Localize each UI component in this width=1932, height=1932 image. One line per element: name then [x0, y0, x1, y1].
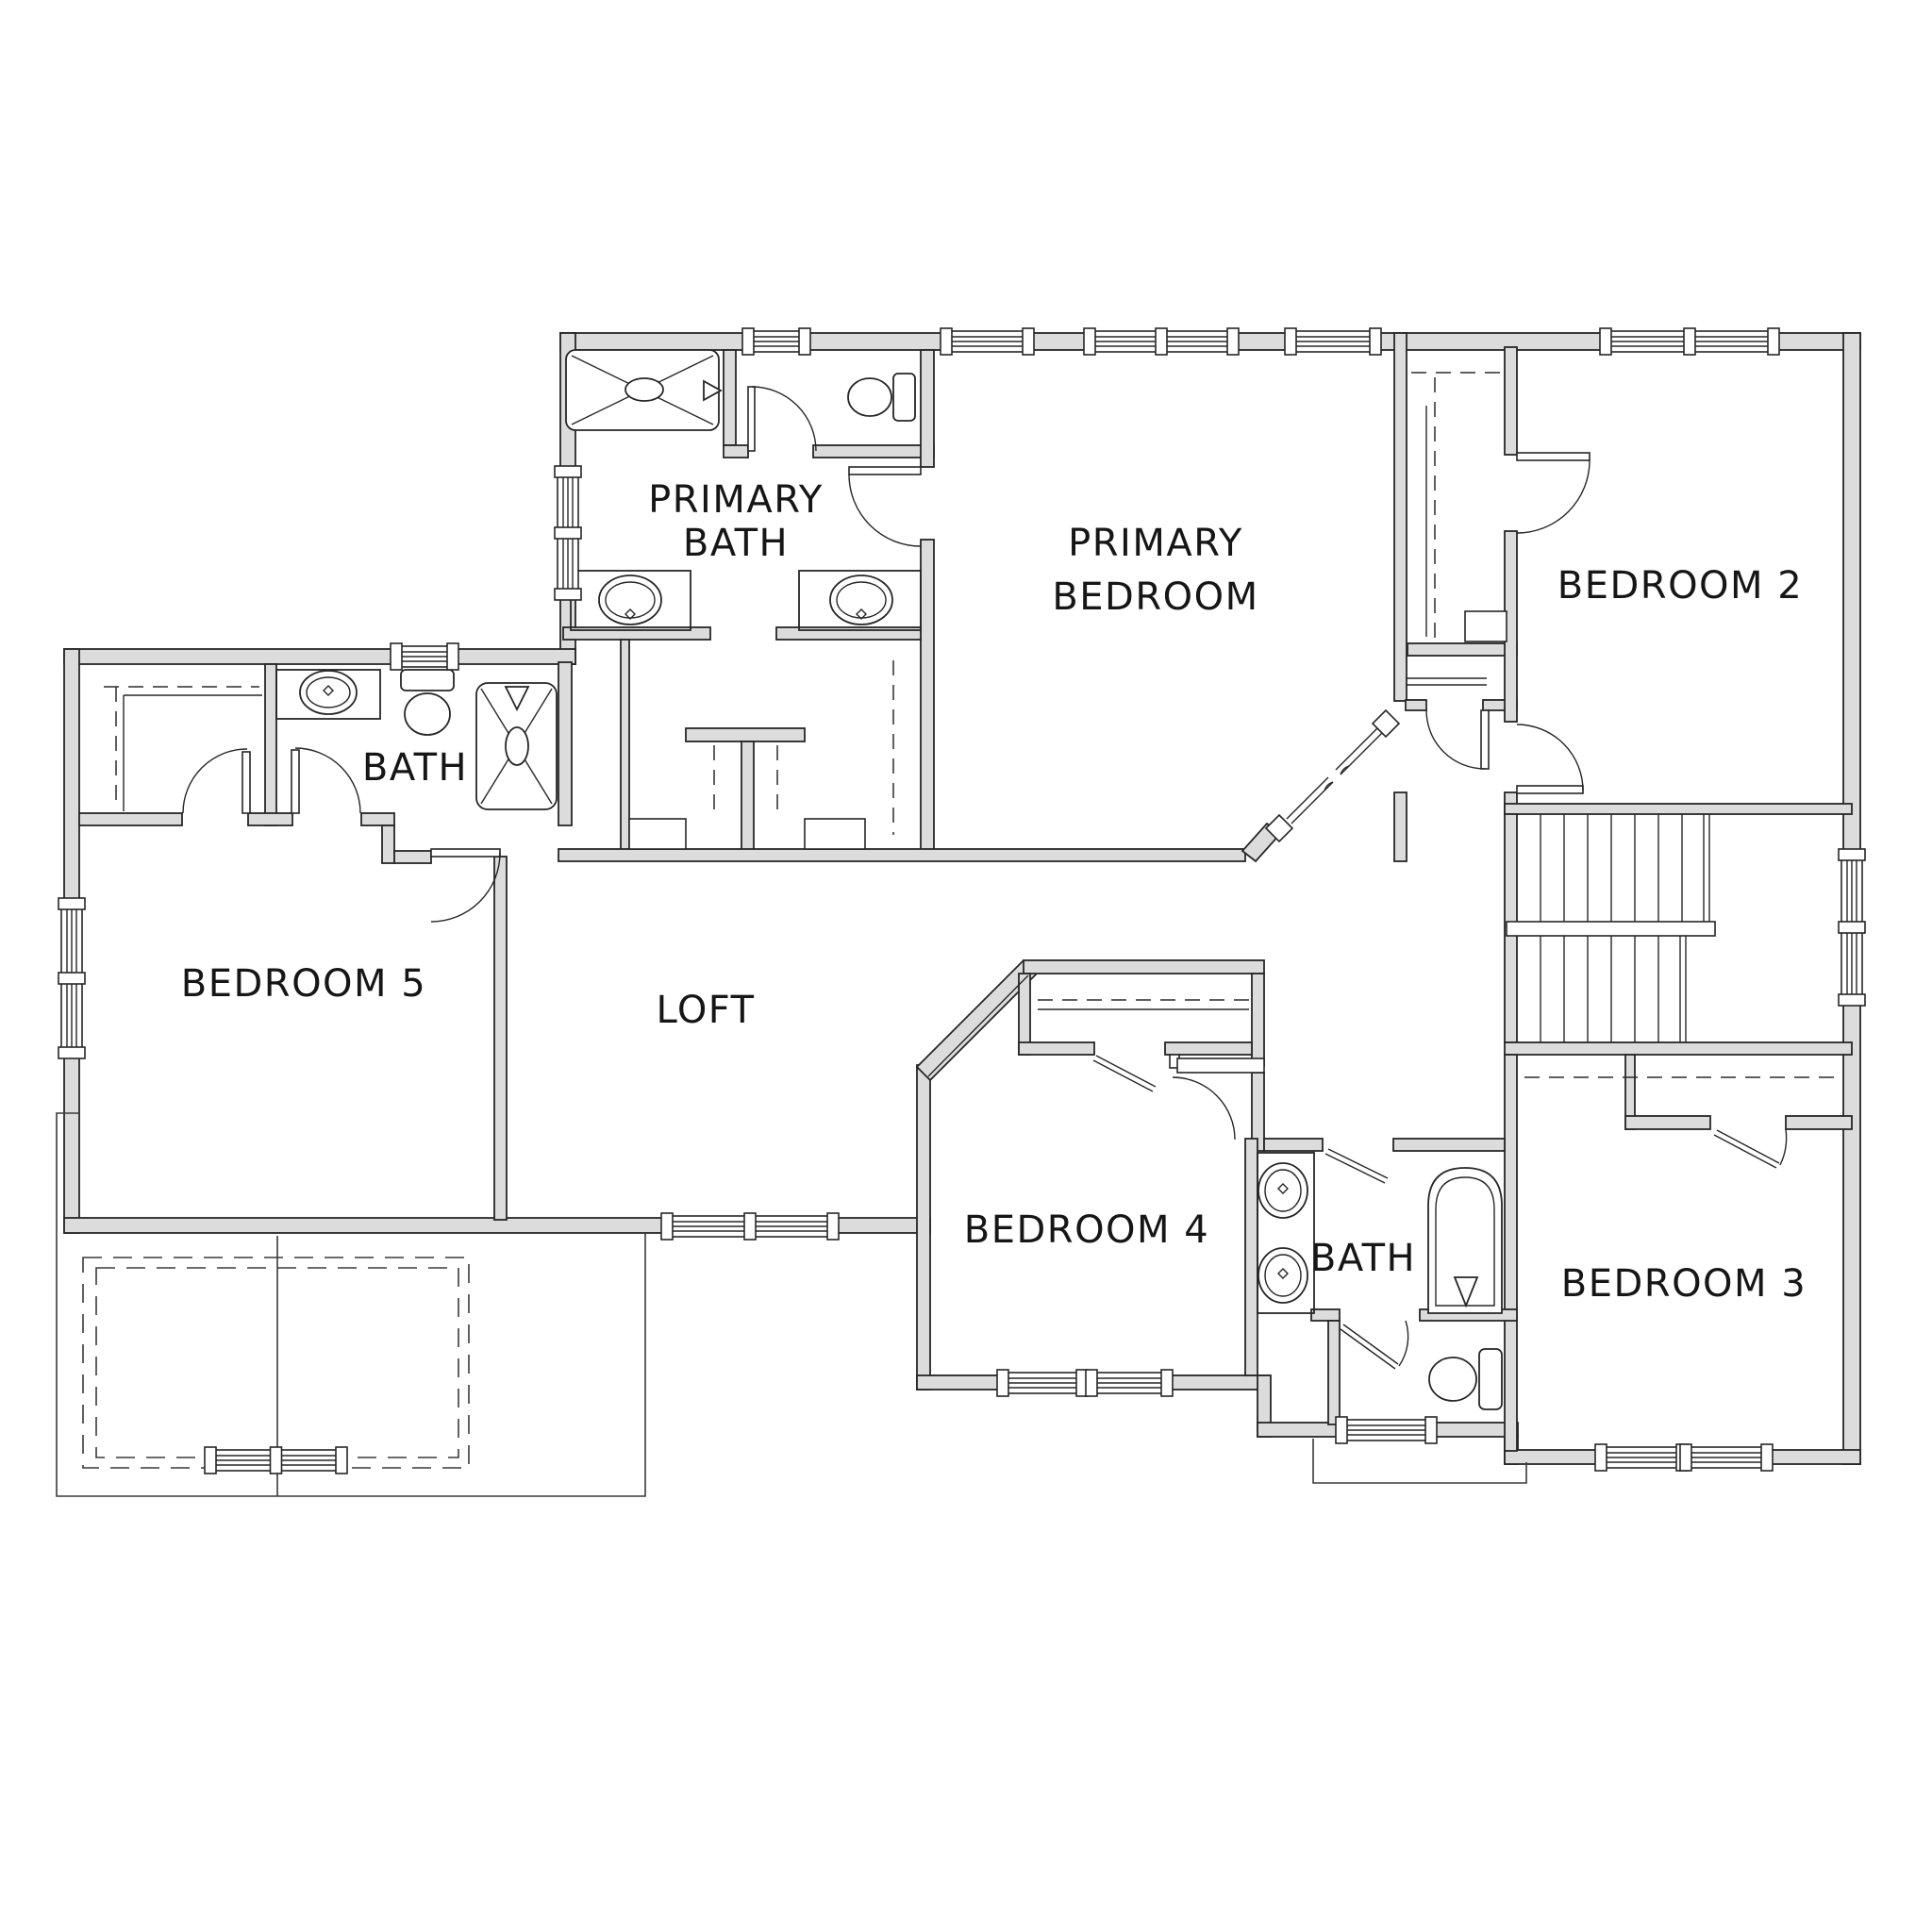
wall [1165, 1042, 1252, 1055]
wall [1264, 1139, 1323, 1151]
window-icon [742, 328, 810, 355]
roof-dashed-edge [83, 1257, 469, 1468]
wall [686, 728, 805, 741]
door-leaf [1341, 1329, 1395, 1369]
door-swing-arc [295, 748, 360, 813]
window-icon [1839, 849, 1865, 1006]
room-label-bedroom-5: BEDROOM 5 [181, 962, 426, 1006]
window-icon [555, 466, 581, 600]
wall [741, 741, 754, 860]
window-icon [1086, 1370, 1173, 1396]
double-door-leaf [1291, 782, 1333, 824]
door-leaf [1325, 1154, 1385, 1183]
window-icon [205, 1447, 347, 1474]
wall [921, 540, 934, 860]
window-icon [1600, 328, 1779, 355]
wall [79, 813, 182, 825]
closet-shelf [1465, 611, 1507, 641]
wall [1505, 1042, 1852, 1055]
wall [563, 627, 710, 640]
door-swing-arc [1780, 1129, 1787, 1165]
room-label-primary-bath-2: BATH [683, 522, 789, 565]
door-leaf [1481, 710, 1489, 769]
door-leaf [748, 387, 755, 451]
window-icon [941, 328, 1034, 355]
door-swing-arc [1517, 724, 1583, 791]
window-icon [1084, 328, 1239, 355]
roof-eave-line [57, 1113, 645, 1496]
wall [1625, 1116, 1710, 1129]
toilet-icon [401, 670, 454, 735]
floor-plan-page: { "meta": { "drawing_type": "residential… [0, 0, 1932, 1932]
wall [1407, 643, 1517, 656]
door-leaf [291, 750, 299, 813]
vanity-sink-icon [276, 670, 380, 719]
window-icon [1336, 1417, 1437, 1443]
window-icon [997, 1370, 1088, 1396]
closet-shelf [805, 819, 865, 849]
wall [1505, 347, 1517, 455]
wall [394, 851, 431, 863]
wall [724, 350, 736, 445]
window-icon [391, 643, 458, 670]
roof-eave-line [1313, 1439, 1526, 1483]
wall [265, 664, 276, 825]
door-leaf [1517, 453, 1590, 460]
door-leaf [431, 849, 500, 857]
wall [1505, 1055, 1517, 1451]
room-label-primary-bedroom: PRIMARY [1068, 522, 1243, 565]
door-swing-arc [1173, 1077, 1235, 1140]
wall [724, 445, 748, 458]
floor-plan-canvas: PRIMARY BATH PRIMARY BEDROOM BEDROOM 2 B… [0, 0, 1932, 1932]
wall [361, 813, 394, 825]
bathtub-icon [1428, 1168, 1502, 1313]
door-swing-arc [1426, 710, 1485, 769]
wall [621, 640, 629, 860]
wall [558, 662, 572, 825]
double-door-leaf [1287, 777, 1328, 819]
wall [1328, 1321, 1340, 1424]
wall [1393, 1139, 1505, 1151]
closet-shelf-line [928, 975, 1028, 1076]
stair-rail [1507, 922, 1715, 936]
room-label-bedroom-2: BEDROOM 2 [1557, 564, 1803, 608]
door-swing-arc [752, 387, 816, 451]
vanity-sink-icon [1257, 1153, 1314, 1313]
half-wall-bar [1177, 1058, 1264, 1073]
door-swing-arc [849, 475, 921, 546]
door-leaf [1093, 1060, 1153, 1091]
door-leaf [1328, 1149, 1388, 1178]
double-door-leaf [1341, 733, 1382, 774]
shower-icon [476, 683, 557, 809]
wall [1394, 333, 1407, 701]
vanity-sink-icon [799, 571, 921, 630]
window-icon [661, 1213, 839, 1240]
wall [64, 649, 575, 664]
room-label-loft: LOFT [656, 989, 755, 1032]
wall [1245, 1139, 1257, 1375]
wall [917, 1065, 930, 1390]
door-leaf [1714, 1135, 1776, 1168]
wall [1024, 960, 1264, 974]
roof-outline [57, 1113, 1526, 1496]
vanity-sink-icon [571, 571, 691, 630]
shower-icon [566, 350, 721, 430]
wall [1394, 792, 1407, 861]
room-label-bedroom-3: BEDROOM 3 [1561, 1262, 1807, 1306]
room-label-bedroom-4: BEDROOM 4 [964, 1208, 1209, 1252]
door-swing-arc [183, 749, 247, 813]
room-label-primary-bath: PRIMARY [648, 478, 824, 522]
wall [1505, 804, 1852, 814]
toilet-icon [1429, 1349, 1502, 1409]
wall [1019, 1042, 1094, 1055]
door-leaf [1517, 786, 1583, 793]
wall [494, 857, 507, 1220]
room-label-bath-right: BATH [1310, 1237, 1416, 1280]
door-leaf [1343, 1324, 1398, 1364]
window-icon [1285, 328, 1381, 355]
wall [382, 825, 394, 863]
wall [776, 627, 921, 640]
door-leaf [242, 752, 250, 813]
wall [248, 813, 292, 825]
door-leaf [1096, 1056, 1156, 1087]
wall [1311, 1309, 1340, 1321]
window-icon [58, 898, 85, 1058]
wall [558, 849, 1245, 861]
closet-shelf [629, 819, 686, 849]
window-icon [1595, 1444, 1688, 1471]
double-door-leaf [1336, 728, 1377, 770]
wall [813, 445, 934, 458]
wall [1786, 1116, 1852, 1129]
wall [921, 350, 934, 467]
wall [1406, 700, 1426, 710]
door-jamb [1373, 710, 1399, 737]
room-label-bath-left: BATH [362, 746, 468, 790]
wall [1252, 974, 1264, 1066]
door-swing-arc [1399, 1321, 1408, 1366]
window-icon [1680, 1444, 1773, 1471]
door-leaf [849, 467, 921, 475]
door-leaf [1717, 1130, 1779, 1163]
room-label-primary-bedroom-2: BEDROOM [1052, 575, 1258, 619]
toilet-icon [848, 374, 915, 421]
door-swing-arc [431, 853, 500, 922]
door-swing-arc [1517, 460, 1590, 533]
room-labels: PRIMARY BATH PRIMARY BEDROOM BEDROOM 2 B… [181, 478, 1807, 1306]
